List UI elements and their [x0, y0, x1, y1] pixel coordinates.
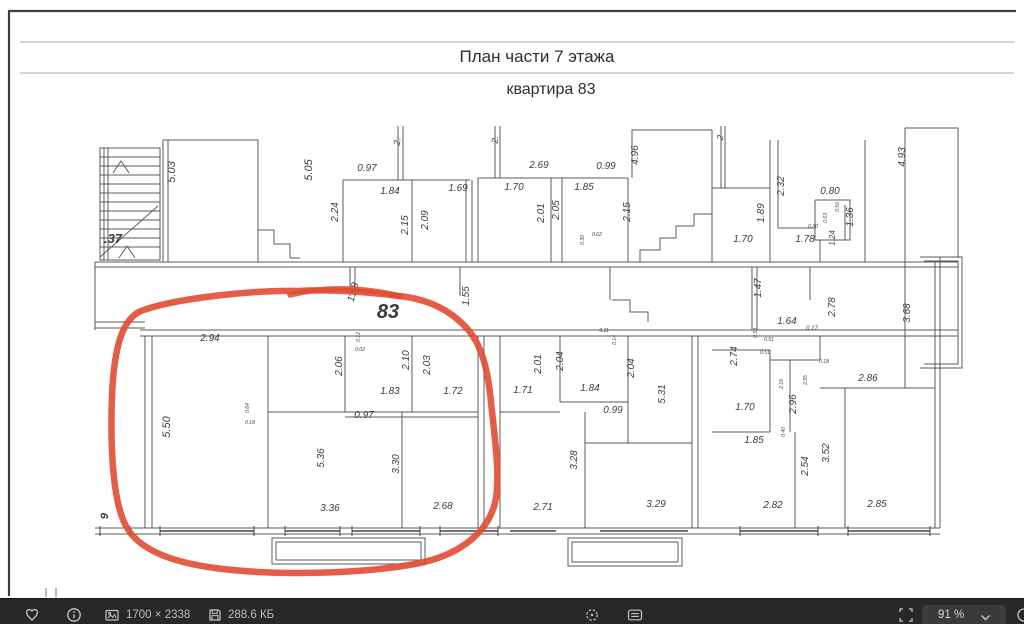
dimension-label: 1.70	[735, 402, 755, 413]
zoom-level-button[interactable]: 91 %	[922, 605, 1006, 624]
dimension-label: 1.89	[756, 203, 767, 223]
dimension-label: 5.50	[161, 415, 173, 437]
info-icon[interactable]	[66, 607, 82, 623]
fit-screen-icon[interactable]	[898, 607, 914, 623]
dimension-label: 0.30	[580, 235, 586, 245]
dimension-label: 2.01	[533, 354, 544, 374]
dimension-label: 2.95	[803, 375, 809, 386]
dimension-label: 1.55	[461, 286, 472, 306]
dimension-label: 1.64	[777, 316, 797, 327]
dimension-label: 2.	[489, 135, 500, 145]
dimension-label: 1.84	[380, 186, 400, 197]
zoom-level-text: 91 %	[938, 609, 964, 621]
dimension-label: 1.70	[733, 234, 753, 245]
dimension-label: 0.50	[835, 202, 841, 212]
dimension-label: 0.18	[819, 359, 829, 365]
dimension-label: 2.71	[532, 502, 552, 513]
dimension-label: 1.84	[580, 383, 600, 394]
file-size-icon	[207, 607, 223, 623]
notes-icon[interactable]	[627, 607, 643, 623]
dimension-label: 1.71	[513, 385, 532, 396]
dimension-label: 3.36	[320, 503, 340, 514]
dimension-label: 2.78	[827, 297, 838, 318]
file-size-text: 288.6 КБ	[228, 609, 274, 621]
dimension-label: 5.31	[657, 384, 668, 403]
dimension-label: 0.30	[808, 224, 818, 230]
image-viewer-window: План части 7 этажа квартира 83	[0, 0, 1024, 624]
favorite-heart-icon[interactable]	[24, 607, 40, 623]
dimension-label: 9	[99, 512, 111, 519]
dimension-label: 2.54	[800, 456, 811, 477]
dimension-label: 3.52	[821, 443, 832, 463]
dimension-label: 1.70	[504, 182, 524, 193]
dimension-label: 0.02	[355, 347, 365, 353]
dimension-label: 2.04	[555, 351, 566, 372]
dimension-label: 2.86	[857, 373, 878, 384]
dimension-label: 0.53	[823, 213, 829, 223]
dimension-label: 2.94	[199, 333, 220, 344]
dimension-label: 0.11	[599, 328, 609, 334]
dimension-label: 2.05	[551, 200, 562, 221]
dimension-label: 3.29	[646, 499, 666, 510]
dimension-label: 2.09	[420, 210, 431, 231]
dimension-label: 5.05	[303, 158, 315, 180]
dimension-label: 0.99	[603, 405, 623, 416]
dimension-label: 2.01	[536, 203, 547, 223]
dimension-label: 0.58	[753, 328, 759, 338]
image-dimensions-text: 1700 × 2338	[126, 609, 190, 621]
photo-canvas[interactable]: План части 7 этажа квартира 83	[0, 0, 1024, 598]
dimension-label: 2.03	[422, 355, 433, 376]
chevron-down-icon	[980, 614, 991, 622]
dimension-label: 0.99	[596, 161, 616, 172]
dimension-label: 5.03	[166, 160, 178, 182]
dimension-label: 0.97	[354, 410, 374, 421]
dimension-label: 0.14	[612, 335, 618, 345]
dimension-label: 2.82	[762, 500, 783, 511]
dimension-label: 2.19	[779, 379, 785, 390]
partial-right-icon[interactable]	[1016, 607, 1024, 623]
dimension-label: 2.15	[400, 215, 411, 236]
dimension-label: 1.83	[380, 386, 400, 397]
dimension-label: 0.97	[357, 163, 377, 174]
dimension-label: 0.17	[806, 326, 818, 332]
dimension-label: 2	[715, 134, 726, 142]
dimension-label: .37	[104, 231, 123, 246]
image-dimensions-icon	[104, 607, 120, 623]
dimension-label: 3.68	[902, 303, 913, 323]
dimension-label: 1.85	[574, 182, 594, 193]
dimension-label: 2.96	[788, 394, 799, 415]
dimension-label: 0.40	[781, 427, 787, 437]
dimension-label: 0.51	[760, 350, 770, 356]
dimension-labels: .375.035.052.2.20.971.842.242.152.091.69…	[99, 134, 913, 519]
dimension-label: 2.74	[729, 346, 740, 367]
dimension-label: 0.18	[245, 420, 255, 426]
dimension-label: 0.64	[245, 403, 251, 413]
dimension-label: 2.04	[626, 358, 637, 379]
dimension-label: 0.80	[820, 186, 840, 197]
dimension-label: 3.30	[391, 454, 402, 474]
dimension-label: 1.36	[845, 207, 856, 227]
plan-subtitle: квартира 83	[506, 81, 595, 98]
dimension-label: 1.69	[448, 183, 468, 194]
dimension-label: 2.15	[622, 202, 633, 223]
dimension-label: 0.51	[764, 337, 774, 343]
dimension-label: 4.93	[897, 147, 908, 167]
dimension-label: 0.62	[592, 232, 602, 238]
plan-title: План части 7 этажа	[460, 47, 615, 66]
floor-plan-image: План части 7 этажа квартира 83	[0, 0, 1024, 598]
rotate-icon[interactable]	[584, 607, 600, 623]
dimension-label: 2.10	[401, 350, 412, 371]
dimension-label: 2.	[391, 137, 402, 147]
dimension-label: 1.72	[443, 386, 463, 397]
dimension-label: 2.68	[432, 501, 453, 512]
dimension-label: 1.24	[828, 230, 837, 246]
dimension-label: 3.28	[569, 450, 580, 470]
dimension-label: 1.85	[744, 435, 764, 446]
dimension-label: 83	[377, 301, 399, 323]
dimension-label: 1.78	[795, 234, 815, 245]
dimension-label: 2.24	[330, 202, 341, 223]
dimension-label: 1.47	[753, 278, 764, 298]
dimension-label: 2.85	[866, 499, 887, 510]
viewer-toolbar: 1700 × 2338 288.6 КБ 91 %	[0, 598, 1024, 624]
dimension-label: 2.32	[776, 176, 787, 197]
dimension-label: 0.12	[356, 332, 362, 342]
dimension-label: 2.06	[334, 356, 345, 377]
dimension-label: 4.96	[630, 145, 641, 165]
dimension-label: 2.69	[528, 160, 549, 171]
dimension-label: 5.36	[316, 448, 327, 468]
